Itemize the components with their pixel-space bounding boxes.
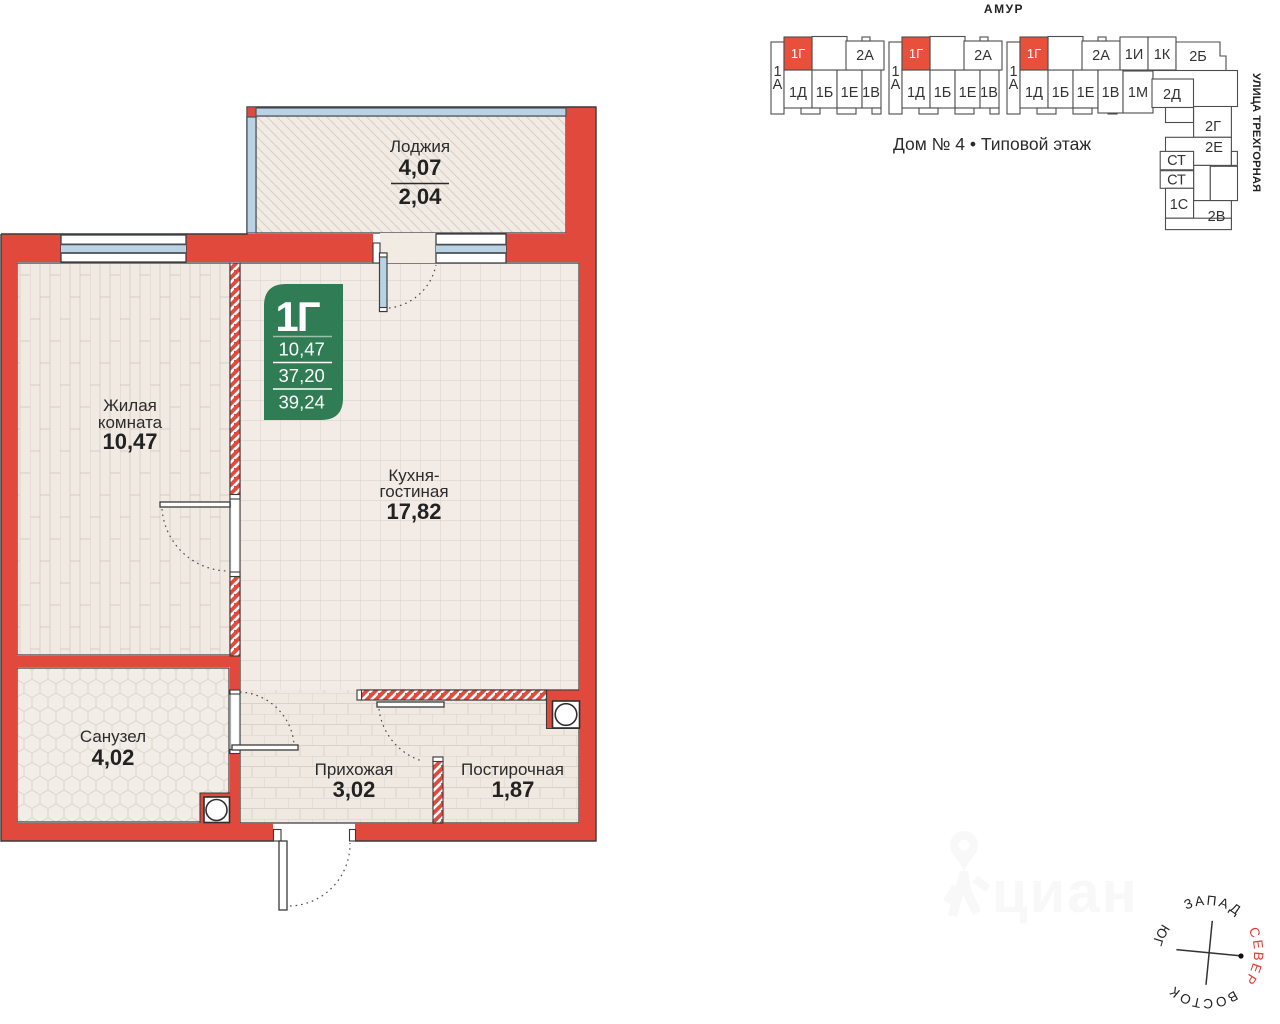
svg-text:2Д: 2Д: [1163, 87, 1181, 103]
svg-text:Дом № 4 • Типовой этаж: Дом № 4 • Типовой этаж: [893, 134, 1091, 154]
svg-text:СТ: СТ: [1167, 173, 1186, 189]
svg-text:2А: 2А: [974, 48, 992, 64]
svg-text:10,47: 10,47: [102, 429, 157, 454]
svg-text:3,02: 3,02: [333, 777, 376, 802]
svg-text:1,87: 1,87: [492, 777, 535, 802]
svg-text:А: А: [773, 77, 783, 93]
svg-text:1Е: 1Е: [1077, 85, 1095, 101]
svg-text:2А: 2А: [856, 48, 874, 64]
svg-text:1Д: 1Д: [1025, 85, 1043, 101]
svg-text:1Б: 1Б: [1052, 85, 1070, 101]
svg-text:1К: 1К: [1154, 47, 1171, 63]
svg-text:2Г: 2Г: [1205, 119, 1221, 135]
svg-text:2,04: 2,04: [399, 184, 443, 209]
svg-text:1Д: 1Д: [789, 85, 807, 101]
svg-text:1М: 1М: [1128, 85, 1148, 101]
svg-text:37,20: 37,20: [279, 365, 325, 386]
svg-text:1В: 1В: [1102, 85, 1120, 101]
svg-text:1Г: 1Г: [909, 46, 923, 61]
svg-text:1И: 1И: [1125, 47, 1144, 63]
svg-text:1Г: 1Г: [791, 46, 805, 61]
svg-text:СТ: СТ: [1167, 153, 1186, 169]
svg-text:УЛИЦА ТРЕХГОРНАЯ: УЛИЦА ТРЕХГОРНАЯ: [1250, 73, 1262, 192]
svg-text:циан: циан: [992, 860, 1139, 925]
svg-text:17,82: 17,82: [386, 499, 441, 524]
svg-text:1Г: 1Г: [275, 293, 319, 340]
svg-text:1В: 1В: [980, 85, 998, 101]
svg-text:39,24: 39,24: [279, 392, 325, 413]
svg-text:1Б: 1Б: [816, 85, 834, 101]
svg-text:4,02: 4,02: [92, 745, 135, 770]
svg-text:Лоджия: Лоджия: [390, 137, 450, 156]
svg-text:1Д: 1Д: [907, 85, 925, 101]
svg-text:4,07: 4,07: [399, 155, 442, 180]
svg-text:2Б: 2Б: [1189, 49, 1207, 65]
svg-text:2Е: 2Е: [1205, 140, 1223, 156]
svg-text:10,47: 10,47: [279, 339, 325, 360]
svg-text:1Г: 1Г: [1027, 46, 1041, 61]
svg-text:А: А: [891, 77, 901, 93]
svg-text:1Е: 1Е: [959, 85, 977, 101]
svg-text:АМУР: АМУР: [984, 2, 1024, 16]
svg-text:2В: 2В: [1208, 209, 1226, 225]
svg-text:2А: 2А: [1092, 48, 1110, 64]
svg-text:1С: 1С: [1170, 197, 1189, 213]
svg-text:1Е: 1Е: [841, 85, 859, 101]
svg-text:1Б: 1Б: [934, 85, 952, 101]
svg-text:А: А: [1009, 77, 1019, 93]
svg-text:1В: 1В: [862, 85, 880, 101]
svg-text:Санузел: Санузел: [80, 727, 146, 746]
